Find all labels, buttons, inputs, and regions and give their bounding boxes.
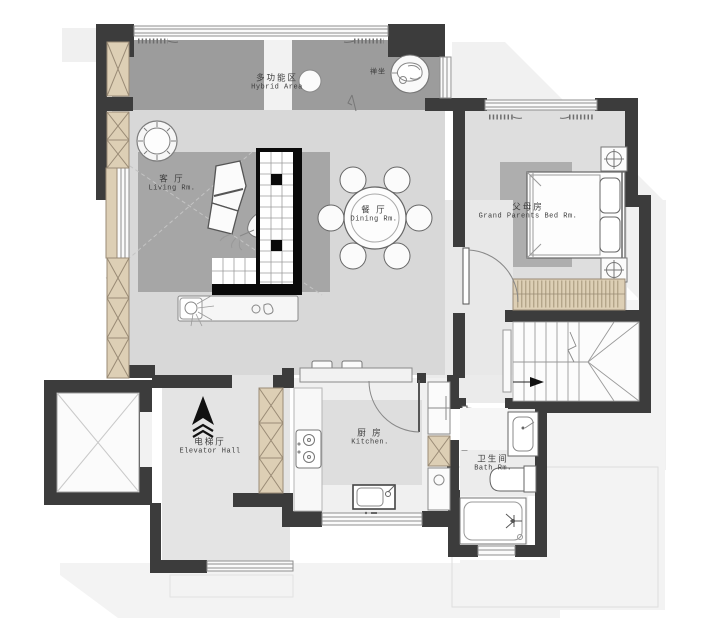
bathtub [460,498,526,544]
dining-chair [318,205,344,231]
bed [527,172,625,258]
toilet [490,466,536,492]
meditation-chair [391,55,429,93]
hall-kitchen-wood-column [259,388,283,493]
staircase [513,322,639,401]
window-top [134,26,388,36]
window-bedroom-top [485,100,597,110]
dining-chair [384,243,410,269]
stove [296,430,321,468]
floor-plan-canvas: 多功能区 Hybrid Area 禅坐 客 厅 Living Rm. 餐 厅 D… [0,0,713,627]
dining-chair [340,167,366,193]
kitchen-nook-wood-box [428,436,450,466]
elevator-door [140,412,152,467]
washer [428,468,450,510]
kitchen-rug [322,400,422,485]
bedroom-furniture [513,147,627,310]
nightstand [601,147,627,171]
elevator-shaft [44,380,152,505]
nightstand [601,258,627,282]
window-kitchen-bottom [322,513,422,525]
floor-plan-drawing [0,0,713,627]
floor-lamp [137,121,177,161]
hybrid-walkway [264,40,292,110]
round-stool [299,70,321,92]
dining-table [344,187,406,249]
window-hall-bottom [207,561,293,571]
dining-chair [406,205,432,231]
tall-cabinet [428,382,450,434]
window-hybrid-right [440,57,451,98]
console-bench [178,296,298,326]
window-left [117,168,129,258]
bath-vanity [508,412,538,456]
dining-chair [384,167,410,193]
pass-through-counter [300,368,412,382]
dining-chair [340,243,366,269]
wardrobe [513,279,625,310]
stair-door [503,330,511,392]
window-tub-bottom [478,546,515,555]
